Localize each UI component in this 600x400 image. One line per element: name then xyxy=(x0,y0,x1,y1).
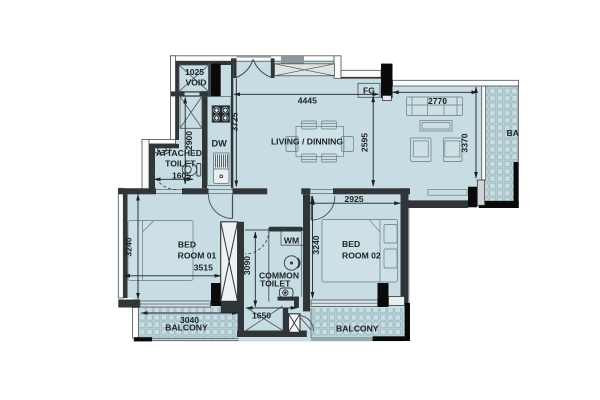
svg-text:1605: 1605 xyxy=(172,170,191,180)
svg-text:TOILET: TOILET xyxy=(165,159,196,169)
svg-text:BALCONY: BALCONY xyxy=(165,323,208,333)
svg-text:3370: 3370 xyxy=(459,133,469,152)
svg-text:1025: 1025 xyxy=(185,67,204,77)
svg-text:WM: WM xyxy=(284,236,299,246)
svg-text:2770: 2770 xyxy=(428,96,447,106)
svg-text:ROOM 02: ROOM 02 xyxy=(342,250,381,260)
svg-text:DW: DW xyxy=(212,139,228,149)
svg-text:3240: 3240 xyxy=(311,235,321,254)
svg-text:3240: 3240 xyxy=(124,237,134,256)
svg-text:BED: BED xyxy=(342,239,360,249)
svg-text:3515: 3515 xyxy=(194,263,213,273)
svg-text:LIVING / DINNING: LIVING / DINNING xyxy=(271,137,343,147)
svg-text:ATTACHED: ATTACHED xyxy=(156,148,202,158)
svg-text:ROOM 01: ROOM 01 xyxy=(178,250,217,260)
svg-text:BED: BED xyxy=(178,240,196,250)
svg-text:BALCONY: BALCONY xyxy=(336,324,379,334)
svg-text:3725: 3725 xyxy=(230,112,240,131)
svg-text:1650: 1650 xyxy=(252,311,271,321)
svg-text:FG: FG xyxy=(363,86,375,96)
svg-text:4445: 4445 xyxy=(298,96,317,106)
svg-text:2925: 2925 xyxy=(344,194,363,204)
svg-text:TOILET: TOILET xyxy=(260,278,291,288)
svg-text:VOID: VOID xyxy=(185,77,206,87)
svg-text:2900: 2900 xyxy=(184,131,194,150)
svg-text:2595: 2595 xyxy=(360,133,370,152)
svg-text:3090: 3090 xyxy=(242,256,252,275)
